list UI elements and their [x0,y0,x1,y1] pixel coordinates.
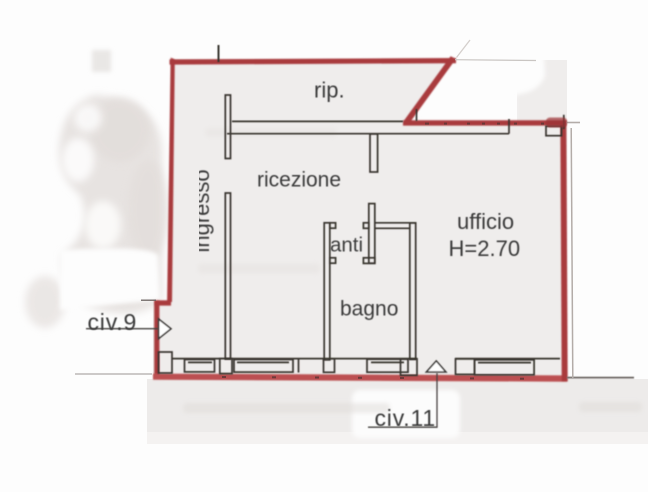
svg-text:ufficio: ufficio [457,209,514,234]
svg-text:rip.: rip. [314,78,345,103]
svg-text:ricezione: ricezione [257,169,341,192]
svg-text:H=2.70: H=2.70 [449,236,521,261]
svg-text:ingresso: ingresso [189,169,214,252]
svg-text:bagno: bagno [340,298,398,321]
svg-text:anti: anti [330,234,363,257]
svg-text:civ.11: civ.11 [375,405,436,431]
svg-text:civ.9: civ.9 [88,309,138,335]
